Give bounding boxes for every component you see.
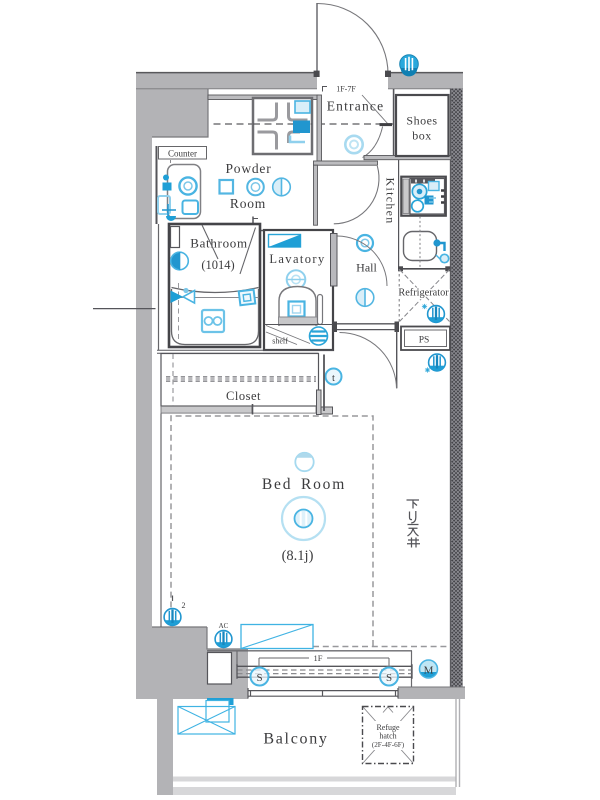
svg-text:Room: Room — [230, 196, 266, 211]
svg-text:2: 2 — [182, 601, 186, 610]
svg-text:(1014): (1014) — [201, 258, 234, 272]
svg-text:PS: PS — [419, 336, 430, 346]
svg-text:Balcony: Balcony — [263, 731, 328, 748]
svg-text:Powder: Powder — [225, 161, 271, 176]
svg-text:Bed Room: Bed Room — [262, 476, 346, 493]
svg-text:S: S — [256, 672, 262, 684]
svg-text:t: t — [332, 373, 335, 384]
svg-text:AC: AC — [219, 622, 229, 630]
svg-text:Kitchen: Kitchen — [384, 178, 398, 225]
svg-text:1F: 1F — [314, 653, 323, 663]
svg-text:Bathroom: Bathroom — [190, 236, 248, 251]
svg-text:(2F-4F-6F): (2F-4F-6F) — [372, 741, 405, 749]
svg-text:Counter: Counter — [168, 149, 197, 159]
svg-text:Hall: Hall — [356, 261, 377, 275]
svg-text:Entrance: Entrance — [327, 99, 385, 114]
svg-text:(8.1j): (8.1j) — [282, 548, 314, 564]
svg-text:Closet: Closet — [226, 389, 261, 403]
svg-text:1F-7F: 1F-7F — [336, 85, 356, 94]
svg-text:Lavatory: Lavatory — [269, 252, 325, 266]
svg-text:Refrigerator: Refrigerator — [398, 288, 449, 299]
svg-text:M: M — [424, 665, 434, 677]
svg-text:hatch: hatch — [379, 732, 396, 741]
svg-text:shelf: shelf — [272, 337, 288, 346]
svg-text:S: S — [386, 672, 392, 684]
svg-text:Shoes: Shoes — [406, 114, 437, 128]
svg-text:box: box — [412, 129, 432, 143]
